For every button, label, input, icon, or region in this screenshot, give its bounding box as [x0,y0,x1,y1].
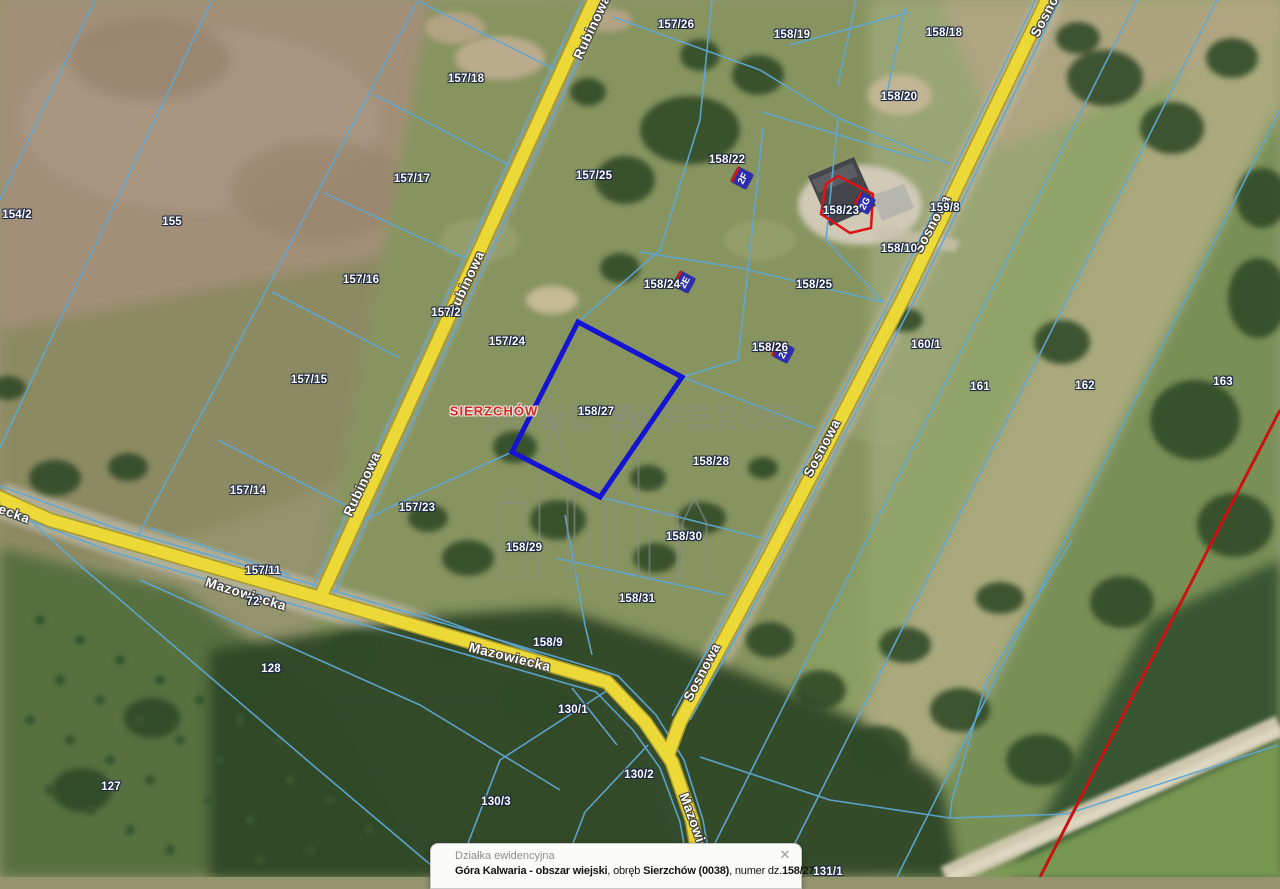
place-label-sierzchow: SIERZCHÓW [450,404,538,419]
highlights-layer [0,0,1280,877]
popup-title: Działka ewidencyjna [455,850,789,862]
map-canvas[interactable]: HOME EMPEROR 157/26157/18158/19158/18158… [0,0,1280,877]
popup-parcel-description: Góra Kalwaria - obszar wiejski, obręb Si… [455,865,789,877]
parcel-info-popup: Działka ewidencyjna Góra Kalwaria - obsz… [430,843,802,889]
red-boundary-line [1040,410,1280,877]
close-icon[interactable]: ✕ [778,849,792,863]
